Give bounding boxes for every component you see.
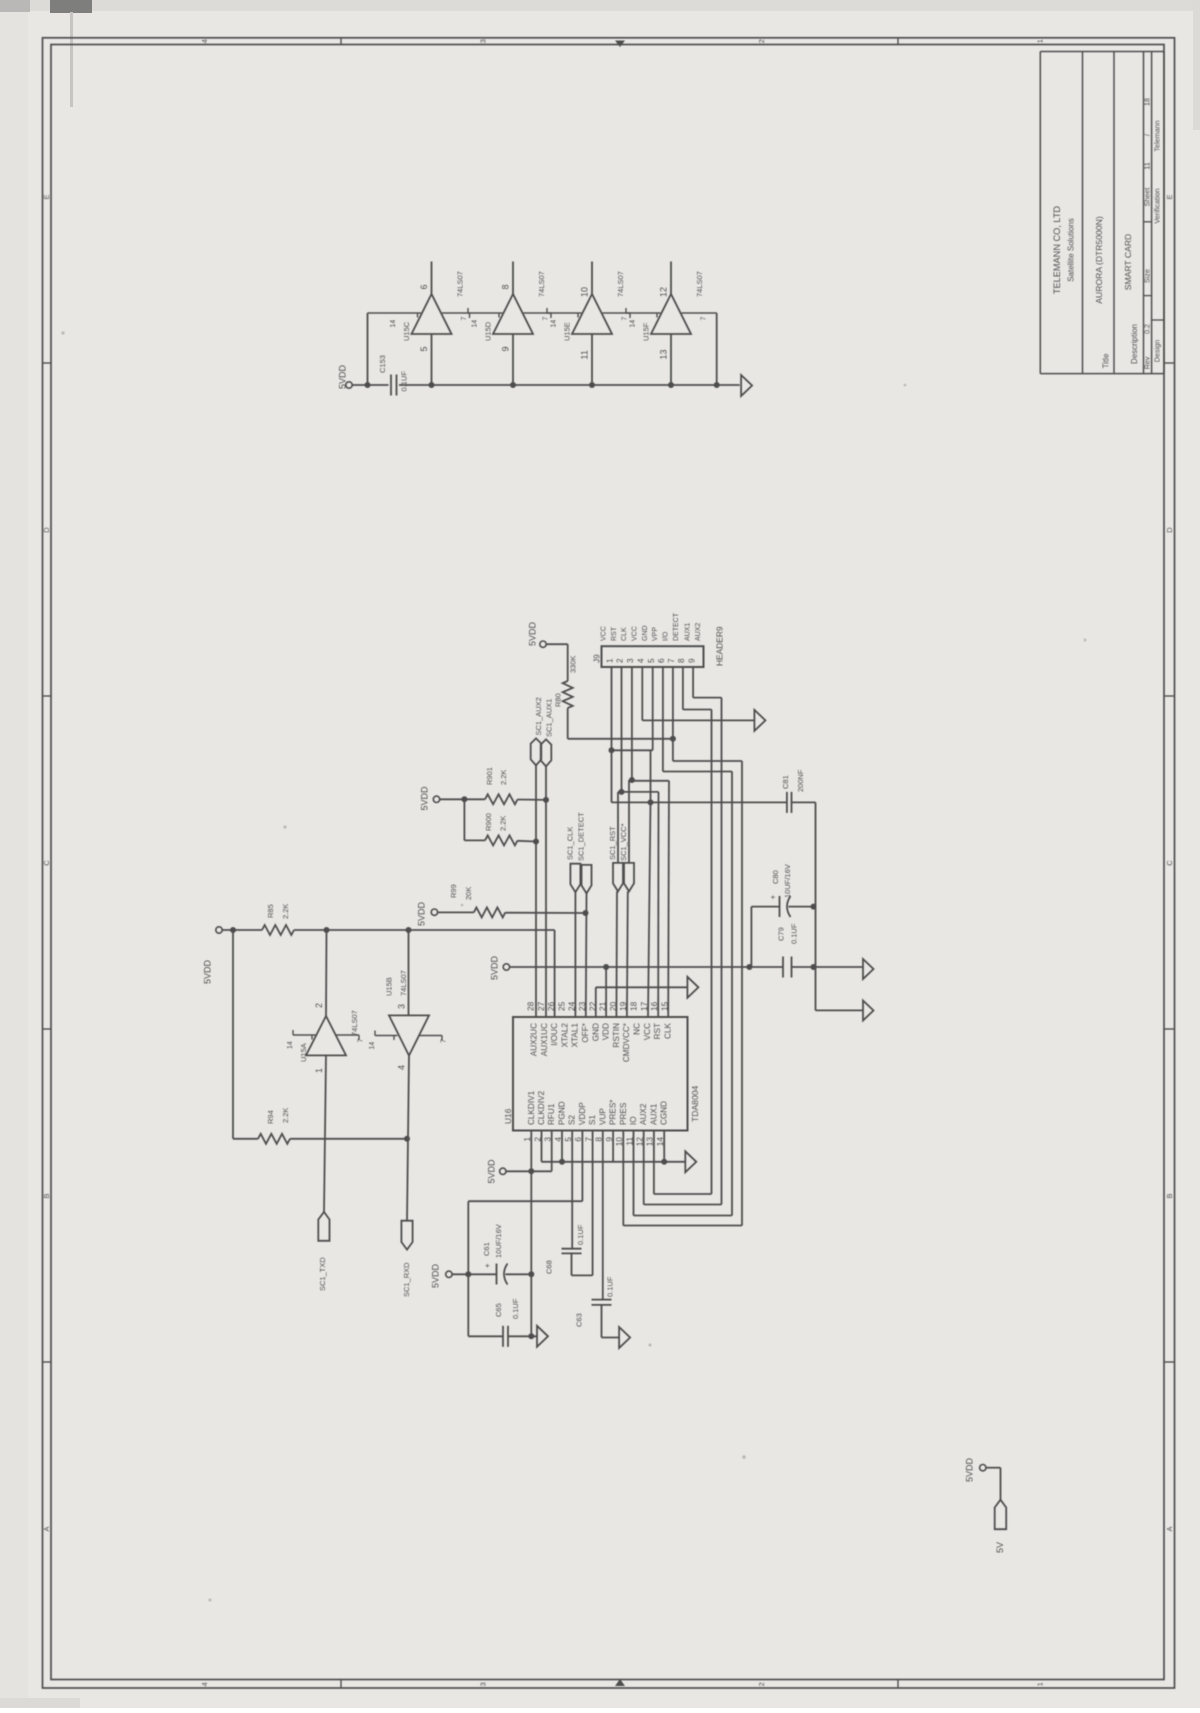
svg-text:D: D [42, 527, 51, 533]
svg-text:4: 4 [637, 658, 646, 663]
svg-text:SC1_AUX2: SC1_AUX2 [534, 697, 543, 735]
svg-text:CMDVCC*: CMDVCC* [622, 1022, 631, 1062]
svg-text:A: A [1165, 1526, 1174, 1531]
svg-text:9: 9 [501, 346, 511, 351]
svg-text:IO: IO [629, 1116, 638, 1125]
svg-text:Satellite Solutions: Satellite Solutions [1067, 218, 1076, 282]
svg-text:26: 26 [546, 1001, 556, 1011]
svg-text:AUX2UC: AUX2UC [530, 1023, 539, 1056]
svg-text:Telemann: Telemann [1153, 120, 1162, 151]
svg-text:PRES: PRES [619, 1102, 628, 1125]
svg-text:R900: R900 [484, 813, 493, 831]
svg-text:20K: 20K [464, 887, 473, 900]
svg-text:200NF: 200NF [796, 769, 805, 792]
svg-text:5: 5 [647, 658, 656, 663]
svg-text:U16: U16 [503, 1108, 513, 1124]
svg-text:S1: S1 [588, 1115, 597, 1125]
svg-text:SC1_RXD: SC1_RXD [402, 1262, 411, 1297]
svg-text:C63: C63 [575, 1313, 584, 1327]
svg-text:AUX2: AUX2 [639, 1103, 648, 1125]
svg-text:7: 7 [622, 317, 629, 321]
svg-text:0.1UF: 0.1UF [576, 1224, 585, 1245]
svg-text:AUX1: AUX1 [649, 1103, 658, 1125]
svg-text:SC1_TXD: SC1_TXD [318, 1257, 327, 1291]
svg-text:5VDD: 5VDD [431, 1263, 441, 1288]
svg-text:10UF/16V: 10UF/16V [783, 864, 792, 898]
svg-text:Title: Title [1102, 353, 1111, 368]
svg-text:2.2K: 2.2K [281, 904, 290, 919]
svg-text:14: 14 [551, 320, 558, 328]
svg-text:22: 22 [587, 1001, 597, 1011]
svg-text:E: E [42, 194, 51, 199]
svg-text:74LS07: 74LS07 [695, 271, 704, 297]
svg-text:7: 7 [701, 317, 708, 321]
svg-text:VCC: VCC [643, 1023, 652, 1040]
svg-text:SC1_CLK: SC1_CLK [565, 827, 574, 860]
svg-text:15: 15 [659, 1001, 669, 1011]
svg-text:3: 3 [479, 39, 488, 43]
svg-text:9: 9 [687, 658, 696, 663]
svg-text:VDD: VDD [602, 1023, 611, 1040]
svg-text:C61: C61 [482, 1242, 491, 1256]
svg-text:HEADER9: HEADER9 [715, 626, 725, 666]
svg-text:1: 1 [1036, 39, 1045, 43]
svg-text:14: 14 [630, 320, 637, 328]
svg-text:+: + [769, 895, 778, 900]
svg-text:5VDD: 5VDD [487, 1159, 497, 1184]
svg-text:RST: RST [653, 1023, 662, 1039]
svg-text:+: + [483, 1263, 492, 1268]
svg-text:0.1UF: 0.1UF [606, 1276, 615, 1297]
svg-text:7: 7 [667, 658, 676, 663]
svg-text:5VDD: 5VDD [490, 955, 500, 980]
svg-text:RFU1: RFU1 [547, 1103, 556, 1125]
svg-text:0.1UF: 0.1UF [400, 371, 409, 392]
svg-text:74LS07: 74LS07 [456, 271, 465, 297]
svg-text:Rev: Rev [1143, 356, 1152, 369]
svg-text:3: 3 [626, 658, 635, 663]
svg-text:VPP: VPP [652, 627, 659, 641]
svg-text:1: 1 [1036, 1682, 1045, 1686]
svg-text:B: B [42, 1193, 51, 1198]
svg-text:CLKDIV1: CLKDIV1 [527, 1090, 536, 1125]
svg-text:5VDD: 5VDD [338, 364, 348, 389]
svg-text:CGND: CGND [660, 1101, 669, 1125]
svg-text:S2: S2 [568, 1115, 577, 1125]
svg-text:VCC: VCC [631, 626, 638, 641]
svg-text:SMART CARD: SMART CARD [1123, 234, 1133, 291]
svg-text:2.2K: 2.2K [499, 770, 508, 785]
svg-text:18: 18 [629, 1001, 639, 1011]
svg-text:GND: GND [591, 1023, 600, 1041]
svg-text:R80: R80 [554, 693, 563, 707]
svg-text:C153: C153 [378, 355, 387, 373]
svg-text:17: 17 [639, 1001, 649, 1011]
svg-text:14: 14 [390, 320, 397, 328]
svg-text:AUX1: AUX1 [684, 623, 691, 641]
svg-text:GND: GND [642, 625, 649, 641]
svg-text:2.2K: 2.2K [281, 1108, 290, 1123]
svg-text:6: 6 [657, 658, 666, 663]
svg-text:VCC: VCC [600, 626, 607, 641]
svg-text:4: 4 [397, 1065, 407, 1070]
svg-text:14: 14 [287, 1041, 294, 1049]
svg-text:2.2K: 2.2K [499, 816, 508, 831]
svg-text:11: 11 [580, 350, 590, 359]
svg-text:Size: Size [1143, 269, 1152, 283]
svg-text:TELEMANN CO, LTD: TELEMANN CO, LTD [1052, 206, 1062, 295]
svg-text:27: 27 [536, 1001, 546, 1011]
svg-text:OFF*: OFF* [581, 1022, 590, 1042]
svg-text:I/OUC: I/OUC [550, 1023, 559, 1046]
svg-text:8: 8 [677, 658, 686, 663]
svg-text:A: A [42, 1526, 51, 1531]
svg-text:C81: C81 [781, 775, 790, 789]
svg-text:10UF/16V: 10UF/16V [494, 1224, 503, 1258]
svg-text:PGND: PGND [558, 1101, 567, 1125]
svg-text:74LS07: 74LS07 [399, 970, 408, 996]
svg-text:19: 19 [618, 1001, 628, 1011]
svg-text:VDDP: VDDP [578, 1102, 587, 1125]
svg-text:VUP: VUP [598, 1108, 607, 1125]
svg-text:AURORA (DTR5000N): AURORA (DTR5000N) [1094, 216, 1104, 304]
svg-text:6: 6 [419, 284, 429, 289]
svg-text:R99: R99 [449, 884, 458, 898]
svg-text:Sheet: Sheet [1143, 188, 1152, 207]
svg-text:C: C [1165, 860, 1174, 866]
svg-text:J9: J9 [593, 654, 602, 663]
svg-text:4: 4 [200, 1682, 209, 1686]
svg-text:R85: R85 [266, 904, 275, 918]
svg-text:U15C: U15C [402, 321, 411, 341]
svg-text:U15F: U15F [642, 322, 651, 341]
svg-text:2: 2 [757, 39, 766, 43]
svg-text:D: D [1165, 527, 1174, 533]
svg-text:5VDD: 5VDD [528, 621, 538, 646]
svg-text:C80: C80 [771, 870, 780, 884]
svg-text:74LS07: 74LS07 [537, 271, 546, 297]
svg-text:8: 8 [501, 284, 511, 289]
svg-text:5VDD: 5VDD [420, 786, 430, 811]
svg-text:3: 3 [479, 1682, 488, 1686]
svg-text:5VDD: 5VDD [203, 959, 213, 984]
svg-text:1: 1 [314, 1068, 324, 1073]
svg-text:5V: 5V [995, 1542, 1005, 1553]
svg-text:2: 2 [757, 1682, 766, 1686]
svg-text:5VDD: 5VDD [417, 901, 427, 926]
svg-text:74LS07: 74LS07 [350, 1010, 359, 1036]
svg-text:U15B: U15B [385, 977, 394, 996]
svg-text:AUX2: AUX2 [695, 623, 702, 641]
svg-text:U15A: U15A [299, 1043, 308, 1062]
svg-text:Design: Design [1153, 340, 1162, 362]
svg-text:SC1_RST: SC1_RST [608, 826, 617, 860]
svg-text:0.1UF: 0.1UF [511, 1298, 520, 1319]
svg-text:SC1_DETECT: SC1_DETECT [577, 812, 586, 861]
svg-text:RST: RST [611, 626, 618, 641]
svg-text:0.1UF: 0.1UF [790, 923, 799, 944]
svg-text:CLK: CLK [663, 1022, 672, 1038]
svg-text:10: 10 [580, 287, 590, 297]
svg-text:XTAL2: XTAL2 [560, 1023, 569, 1048]
svg-text:11: 11 [1143, 162, 1152, 169]
svg-text:16: 16 [649, 1001, 659, 1011]
svg-text:330K: 330K [569, 655, 578, 673]
svg-text:U15D: U15D [484, 321, 493, 341]
svg-text:7: 7 [461, 317, 468, 321]
svg-text:/: / [1143, 134, 1152, 136]
svg-text:AUX1UC: AUX1UC [540, 1023, 549, 1056]
svg-text:2: 2 [314, 1003, 324, 1008]
svg-text:Description: Description [1130, 324, 1139, 364]
svg-text:74LS07: 74LS07 [616, 271, 625, 297]
svg-text:18: 18 [1143, 98, 1152, 106]
svg-text:23: 23 [577, 1001, 587, 1011]
svg-text:7: 7 [358, 1039, 365, 1043]
svg-text:5VDD: 5VDD [965, 1457, 975, 1482]
svg-text:14: 14 [369, 1042, 376, 1050]
svg-text:7: 7 [441, 1039, 448, 1043]
svg-text:12: 12 [659, 287, 669, 297]
svg-text:5: 5 [419, 346, 429, 351]
svg-text:Verification: Verification [1153, 188, 1162, 223]
svg-text:14: 14 [472, 320, 479, 328]
svg-text:7: 7 [543, 317, 550, 321]
svg-text:RSTIN: RSTIN [612, 1023, 621, 1048]
svg-text:I/O: I/O [663, 631, 670, 641]
svg-text:DETECT: DETECT [673, 612, 680, 641]
svg-text:C65: C65 [494, 1303, 503, 1317]
svg-text:20: 20 [608, 1001, 618, 1011]
svg-text:25: 25 [556, 1001, 566, 1011]
svg-text:21: 21 [598, 1001, 608, 1011]
svg-text:24: 24 [567, 1001, 577, 1011]
svg-text:SC1_AUX1: SC1_AUX1 [545, 699, 554, 737]
svg-text:C68: C68 [545, 1260, 554, 1274]
svg-text:R901: R901 [485, 767, 494, 785]
svg-text:TDA8004: TDA8004 [690, 1085, 700, 1122]
svg-text:3: 3 [397, 1004, 407, 1009]
svg-text:NC: NC [633, 1023, 642, 1035]
svg-text:CLK: CLK [621, 627, 628, 641]
svg-text:U15E: U15E [563, 322, 572, 341]
svg-text:C79: C79 [777, 927, 786, 941]
svg-text:4: 4 [200, 39, 209, 43]
svg-text:E: E [1165, 194, 1174, 199]
svg-text:PRES*: PRES* [609, 1099, 618, 1125]
svg-text:SC1_VCC*: SC1_VCC* [619, 823, 628, 861]
svg-text:1: 1 [606, 658, 615, 663]
svg-text:13: 13 [659, 349, 669, 359]
svg-text:B: B [1165, 1193, 1174, 1198]
svg-text:R94: R94 [266, 1110, 275, 1124]
svg-text:C: C [42, 860, 51, 866]
svg-text:CLKDIV2: CLKDIV2 [537, 1090, 546, 1125]
svg-text:2: 2 [616, 658, 625, 663]
svg-text:XTAL1: XTAL1 [571, 1023, 580, 1048]
svg-text:0.2: 0.2 [1143, 324, 1152, 334]
svg-text:28: 28 [526, 1001, 536, 1011]
